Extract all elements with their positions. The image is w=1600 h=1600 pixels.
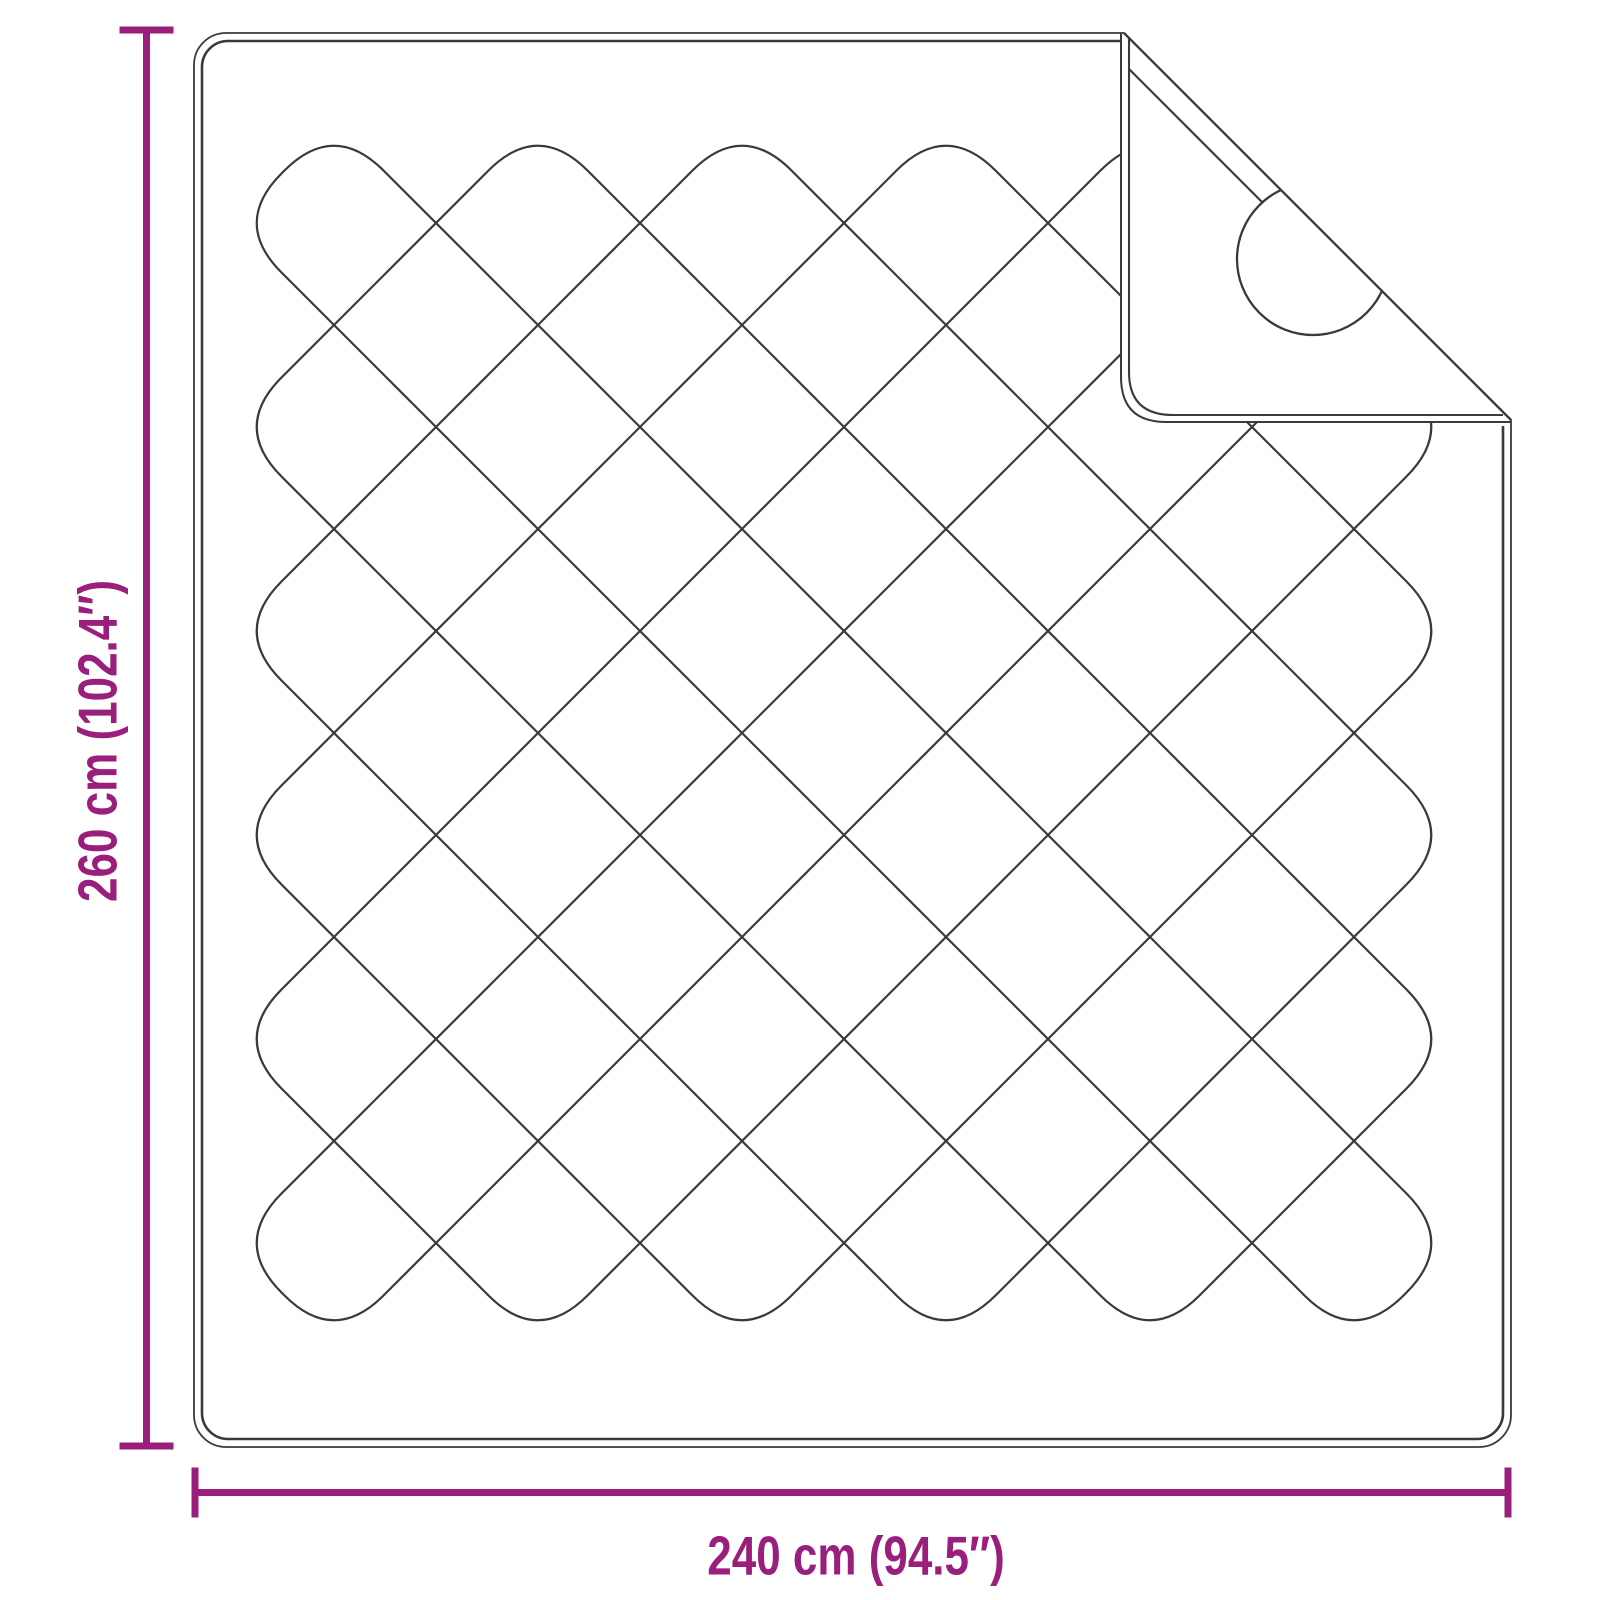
flap-fill xyxy=(1121,33,1511,422)
width-right-tick xyxy=(1505,1468,1512,1518)
height-dimension-label: 260 cm (102.4″) xyxy=(71,580,126,902)
folded-corner-flap xyxy=(1121,33,1511,422)
width-dimension-label: 240 cm (94.5″) xyxy=(707,1529,1004,1584)
width-dimension-line xyxy=(192,1468,1512,1518)
width-left-tick xyxy=(192,1468,199,1518)
height-line xyxy=(143,27,150,1450)
width-line xyxy=(195,1489,1508,1496)
height-bottom-tick xyxy=(120,1443,174,1450)
height-top-tick xyxy=(120,27,174,34)
blanket-drawing xyxy=(0,0,1600,1600)
blanket-dimension-diagram: 260 cm (102.4″) 240 cm (94.5″) xyxy=(0,0,1600,1600)
